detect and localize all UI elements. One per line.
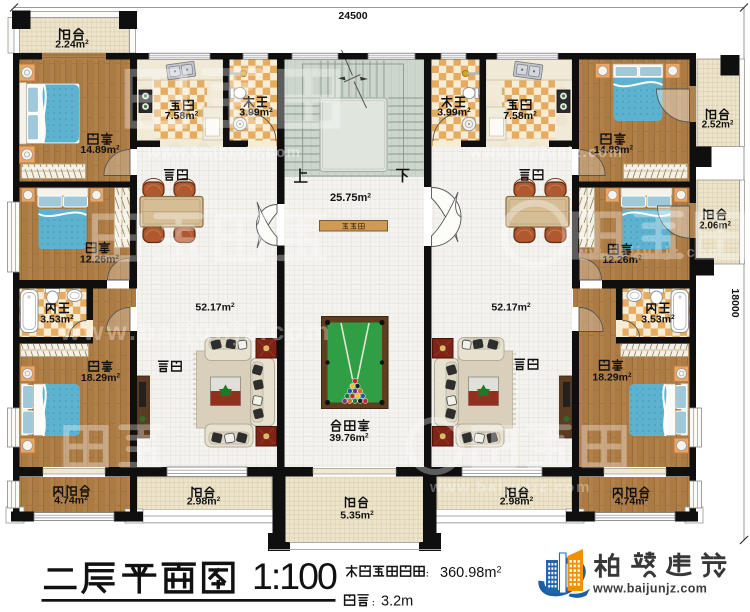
svg-text:3.99m2: 3.99m2 bbox=[437, 107, 471, 119]
svg-text:www.baijunjz.com: www.baijunjz.com bbox=[147, 144, 301, 161]
svg-text::: : bbox=[426, 570, 429, 579]
svg-text:www.baijunjz.com: www.baijunjz.com bbox=[429, 479, 591, 496]
svg-text:14.89m2: 14.89m2 bbox=[80, 144, 120, 156]
svg-text:www.baijunjz.com: www.baijunjz.com bbox=[592, 582, 707, 596]
svg-text:24500: 24500 bbox=[338, 10, 367, 22]
svg-text:7.58m2: 7.58m2 bbox=[503, 110, 537, 122]
svg-text:www.baijunjz.com: www.baijunjz.com bbox=[59, 316, 332, 346]
svg-text:5.35m2: 5.35m2 bbox=[340, 510, 374, 522]
svg-text:4.74m2: 4.74m2 bbox=[615, 496, 649, 508]
svg-text:52.17m2: 52.17m2 bbox=[491, 302, 531, 314]
svg-text:3.99m2: 3.99m2 bbox=[239, 107, 273, 119]
svg-text:2.52m2: 2.52m2 bbox=[702, 119, 734, 130]
svg-text:2.06m2: 2.06m2 bbox=[699, 220, 731, 231]
svg-text:4.74m2: 4.74m2 bbox=[54, 495, 88, 507]
svg-text:www.baijunjz.com: www.baijunjz.com bbox=[469, 144, 623, 161]
svg-text:39.76m2: 39.76m2 bbox=[329, 432, 369, 444]
svg-text:2.98m2: 2.98m2 bbox=[500, 496, 534, 508]
svg-text:1:100: 1:100 bbox=[252, 555, 337, 597]
svg-text:18000: 18000 bbox=[729, 288, 741, 317]
svg-text:3.2m: 3.2m bbox=[381, 594, 413, 610]
svg-text:360.98m2: 360.98m2 bbox=[440, 565, 501, 582]
svg-text:18.29m2: 18.29m2 bbox=[592, 372, 632, 384]
svg-text:52.17m2: 52.17m2 bbox=[195, 302, 235, 314]
svg-text:www.baijunjz.com: www.baijunjz.com bbox=[561, 244, 723, 261]
svg-text:18.29m2: 18.29m2 bbox=[81, 372, 121, 384]
svg-text::: : bbox=[372, 599, 375, 608]
svg-text:2.98m2: 2.98m2 bbox=[187, 496, 221, 508]
svg-text:2.24m2: 2.24m2 bbox=[55, 39, 89, 51]
svg-text:3.53m2: 3.53m2 bbox=[641, 314, 675, 326]
svg-text:25.75m2: 25.75m2 bbox=[330, 192, 371, 204]
